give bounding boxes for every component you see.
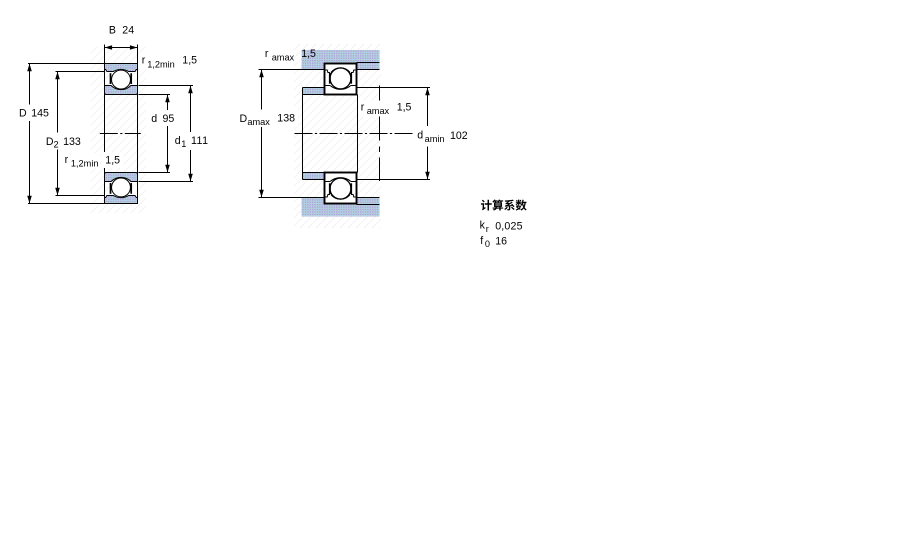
- svg-text:145: 145: [31, 108, 49, 120]
- svg-text:r: r: [142, 54, 146, 66]
- svg-text:138: 138: [277, 113, 295, 125]
- svg-text:1,5: 1,5: [397, 101, 412, 113]
- svg-text:amax: amax: [367, 106, 390, 116]
- svg-text:0,025: 0,025: [495, 220, 523, 232]
- svg-text:amin: amin: [425, 134, 445, 144]
- svg-text:d: d: [175, 135, 181, 147]
- svg-text:f: f: [480, 235, 483, 247]
- svg-text:2: 2: [54, 140, 59, 150]
- svg-text:r: r: [361, 101, 365, 113]
- svg-text:1,2min: 1,2min: [71, 159, 99, 169]
- svg-text:r: r: [265, 48, 269, 60]
- svg-text:d: d: [151, 113, 157, 125]
- svg-text:102: 102: [450, 130, 468, 142]
- svg-text:16: 16: [495, 235, 507, 247]
- svg-text:1: 1: [181, 139, 186, 149]
- svg-text:d: d: [417, 130, 423, 142]
- svg-text:24: 24: [122, 25, 134, 37]
- svg-text:1,5: 1,5: [301, 48, 316, 60]
- svg-text:k: k: [480, 220, 486, 232]
- svg-text:95: 95: [163, 113, 175, 125]
- svg-text:1,2min: 1,2min: [147, 59, 175, 69]
- svg-text:D: D: [240, 113, 248, 125]
- svg-text:133: 133: [63, 136, 81, 148]
- svg-text:D: D: [19, 108, 27, 120]
- svg-text:0: 0: [485, 239, 490, 249]
- svg-text:r: r: [65, 154, 69, 166]
- svg-text:r: r: [486, 224, 489, 234]
- svg-text:111: 111: [191, 135, 208, 147]
- svg-text:B: B: [109, 25, 116, 37]
- svg-text:amax: amax: [272, 53, 295, 63]
- svg-text:1,5: 1,5: [182, 55, 197, 67]
- svg-text:amax: amax: [247, 117, 270, 127]
- svg-text:1,5: 1,5: [105, 155, 120, 167]
